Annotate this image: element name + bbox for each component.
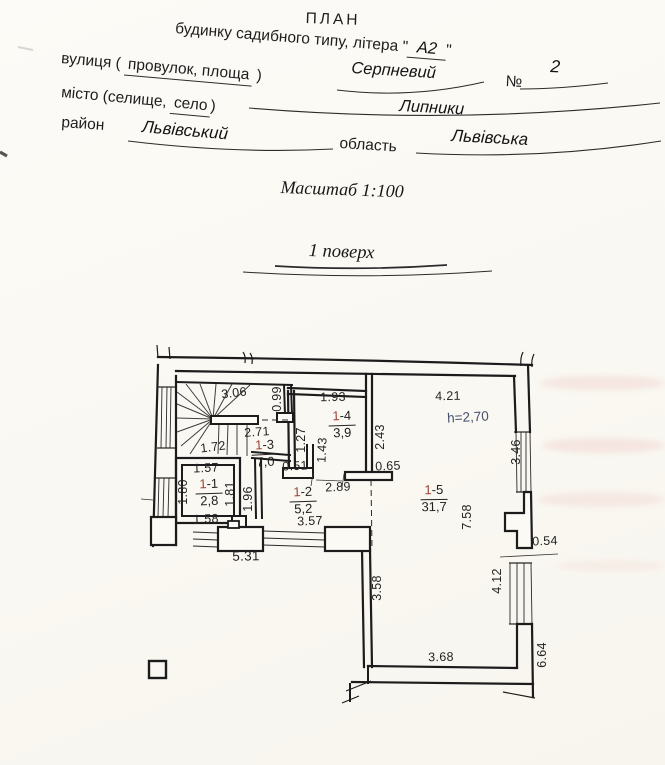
room-area: 2,8 <box>196 494 223 510</box>
document-title: ПЛАН <box>305 10 360 30</box>
room-label-1-2: 1-2 5,2 <box>289 483 317 518</box>
scanned-floor-plan-document: ПЛАН будинку садибного типу, літера "А2"… <box>0 0 665 765</box>
dim-1-80: 1.80 <box>176 479 190 505</box>
dim-6-64: 6.64 <box>535 642 549 668</box>
dim-4-12: 4.12 <box>490 568 504 594</box>
dim-1-81: 1.81 <box>223 481 237 507</box>
district-label: район <box>61 114 105 135</box>
dim-1-93: 1.93 <box>320 390 346 404</box>
room-label-1-5: 1-5 31,7 <box>420 481 447 515</box>
room-id: 1-5 <box>420 483 447 500</box>
dim-2-43: 2.43 <box>373 424 387 450</box>
dim-0-51: 0.51 <box>282 458 308 473</box>
dim-0-54: 0.54 <box>532 534 558 549</box>
room-label-1-4: 1-4 3,9 <box>328 407 356 442</box>
room-id-suffix: -3 <box>262 437 274 453</box>
room-label-1-1: 1-1 2,8 <box>195 475 223 510</box>
room-id-suffix: -2 <box>300 484 312 499</box>
dim-1-58: 1.58 <box>193 512 219 527</box>
room-area: 5,2 <box>290 502 317 518</box>
dim-0-99: 0.99 <box>270 386 284 412</box>
floor-plan-linework <box>0 0 665 765</box>
dim-5-31: 5.31 <box>232 548 260 563</box>
building-letter-value: А2 <box>407 38 447 61</box>
ceiling-height-note: h=2,70 <box>447 408 489 425</box>
room-id: 1-2 <box>289 485 316 503</box>
room-id-suffix: -4 <box>339 408 351 423</box>
floor-title-underlines <box>243 265 492 276</box>
room-id-suffix: -5 <box>432 482 444 497</box>
dim-3-68: 3.68 <box>428 650 454 664</box>
room-area: 7,0 <box>252 454 280 470</box>
margin-marks <box>0 47 33 156</box>
dim-1-27: 1.27 <box>294 427 308 453</box>
house-number-value: 2 <box>550 56 561 77</box>
region-value: Львівська <box>451 126 529 150</box>
dim-4-21: 4.21 <box>435 389 461 403</box>
number-sign: № <box>505 73 523 92</box>
dim-1-96: 1.96 <box>241 486 255 512</box>
street-label-post: ) <box>252 67 263 85</box>
dim-7-58: 7.58 <box>460 504 474 530</box>
city-label-underlined: село <box>170 94 211 118</box>
room-area: 3,9 <box>329 426 356 442</box>
room-id: 1-1 <box>195 477 222 495</box>
region-label: область <box>339 135 397 156</box>
room-id-suffix: -1 <box>206 476 218 491</box>
room-area: 31,7 <box>421 500 448 515</box>
dim-3-58: 3.58 <box>370 575 384 601</box>
dim-0-65: 0.65 <box>375 459 401 474</box>
dim-1-43: 1.43 <box>314 437 329 463</box>
scale-title: Масштаб 1:100 <box>280 177 404 202</box>
room-id: 1-3 <box>251 437 279 455</box>
dim-3-46: 3.46 <box>509 439 523 465</box>
floor-title: 1 поверх <box>308 241 374 264</box>
room-label-1-3: 1-3 7,0 <box>251 435 280 470</box>
room-id: 1-4 <box>328 409 355 427</box>
city-value: Липники <box>399 97 465 119</box>
dim-2-89: 2.89 <box>325 480 351 495</box>
dim-1-57: 1.57 <box>193 461 219 476</box>
